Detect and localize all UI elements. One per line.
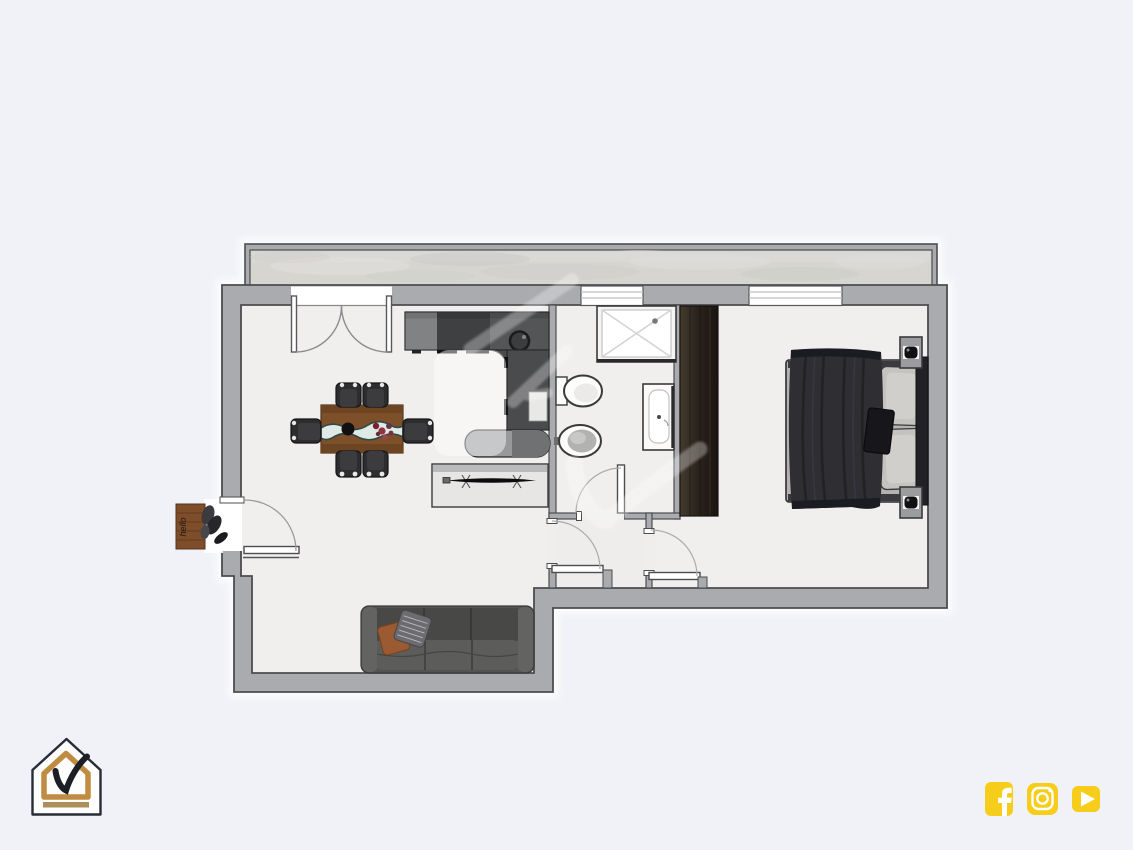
svg-text:hello: hello (178, 517, 188, 536)
